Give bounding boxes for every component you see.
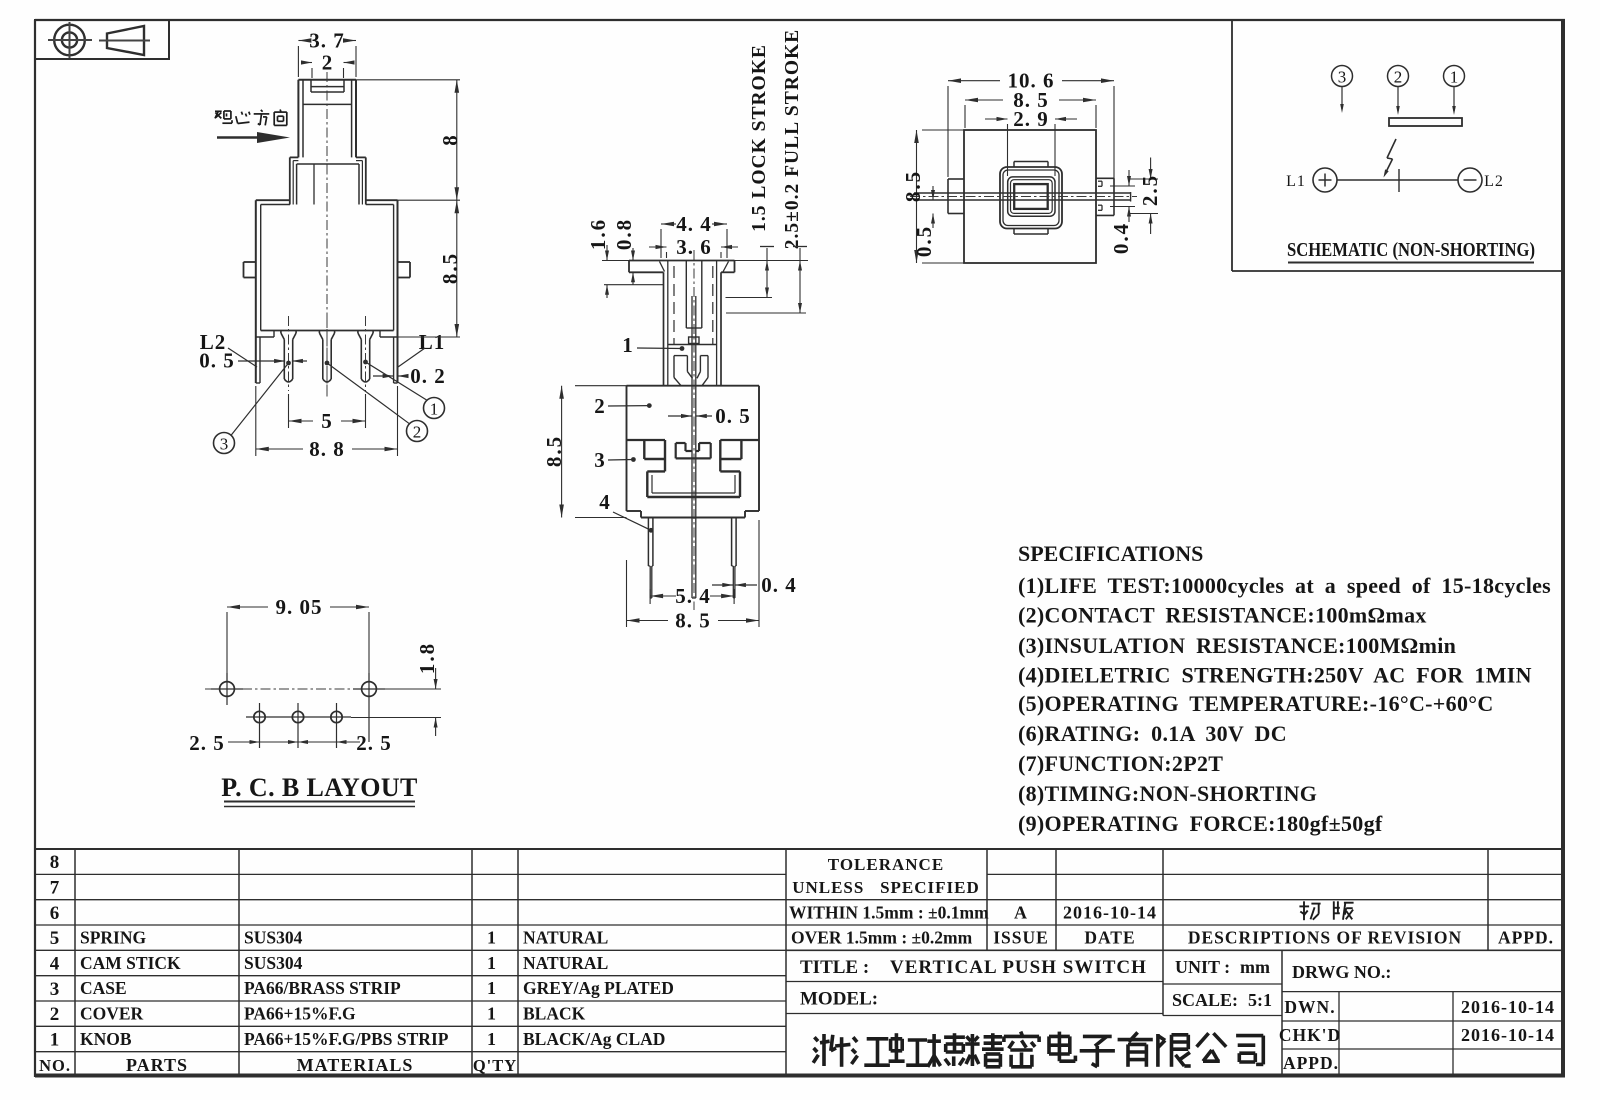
svg-text:1: 1 xyxy=(430,400,439,419)
svg-text:VERTICAL PUSH SWITCH: VERTICAL PUSH SWITCH xyxy=(890,957,1147,978)
svg-text:5: 5 xyxy=(321,409,333,433)
svg-text:6: 6 xyxy=(50,903,61,924)
svg-text:5. 4: 5. 4 xyxy=(675,584,711,608)
svg-text:APPD.: APPD. xyxy=(1498,928,1554,948)
svg-text:2016-10-14: 2016-10-14 xyxy=(1461,1025,1555,1045)
svg-text:SUS304: SUS304 xyxy=(244,953,303,973)
svg-text:5: 5 xyxy=(50,928,61,949)
svg-text:0.4: 0.4 xyxy=(1109,222,1133,254)
svg-text:(1)LIFE TEST:10000cycles at a: (1)LIFE TEST:10000cycles at a speed of 1… xyxy=(1018,573,1551,598)
svg-text:COVER: COVER xyxy=(80,1004,144,1024)
svg-text:L1: L1 xyxy=(419,330,446,354)
svg-text:(4)DIELETRIC STRENGTH:250V AC: (4)DIELETRIC STRENGTH:250V AC FOR 1MIN xyxy=(1018,663,1532,688)
svg-text:0.8: 0.8 xyxy=(612,218,636,250)
svg-text:1: 1 xyxy=(487,928,497,948)
svg-text:(3)INSULATION RESISTANCE:100MΩ: (3)INSULATION RESISTANCE:100MΩmin xyxy=(1018,633,1456,658)
svg-text:UNIT :: UNIT : xyxy=(1175,957,1230,977)
svg-text:7: 7 xyxy=(50,878,61,899)
svg-text:NATURAL: NATURAL xyxy=(523,928,608,948)
svg-text:DRWG NO.:: DRWG NO.: xyxy=(1292,962,1391,982)
svg-text:2: 2 xyxy=(50,1004,61,1025)
svg-text:mm: mm xyxy=(1240,957,1270,977)
svg-text:CHK'D: CHK'D xyxy=(1279,1025,1341,1045)
svg-text:DESCRIPTIONS OF REVISION: DESCRIPTIONS OF REVISION xyxy=(1188,928,1462,948)
svg-text:8.5: 8.5 xyxy=(901,170,925,202)
svg-text:Q'TY: Q'TY xyxy=(473,1056,517,1075)
svg-text:BLACK: BLACK xyxy=(523,1004,586,1024)
svg-text:MATERIALS: MATERIALS xyxy=(297,1055,414,1075)
svg-text:DWN.: DWN. xyxy=(1284,997,1335,1017)
svg-text:(2)CONTACT RESISTANCE:100mΩmax: (2)CONTACT RESISTANCE:100mΩmax xyxy=(1018,603,1427,628)
svg-text:3. 7: 3. 7 xyxy=(309,29,345,53)
svg-text:2016-10-14: 2016-10-14 xyxy=(1063,903,1157,923)
svg-text:4: 4 xyxy=(599,490,611,514)
svg-text:(7)FUNCTION:2P2T: (7)FUNCTION:2P2T xyxy=(1018,751,1223,776)
svg-text:L1: L1 xyxy=(1286,173,1306,190)
svg-text:1.8: 1.8 xyxy=(415,642,439,674)
svg-text:5:1: 5:1 xyxy=(1248,990,1272,1010)
svg-text:1.6: 1.6 xyxy=(586,218,610,250)
svg-text:0. 2: 0. 2 xyxy=(410,364,446,388)
svg-text:1: 1 xyxy=(622,333,634,357)
svg-text:PA66+15%F.G/PBS STRIP: PA66+15%F.G/PBS STRIP xyxy=(244,1029,449,1049)
svg-text:4. 4: 4. 4 xyxy=(676,212,712,236)
svg-text:A: A xyxy=(1014,903,1028,923)
svg-text:8.5: 8.5 xyxy=(542,435,566,467)
svg-text:NO.: NO. xyxy=(39,1056,71,1075)
svg-text:NATURAL: NATURAL xyxy=(523,953,608,973)
svg-text:1.5 LOCK STROKE: 1.5 LOCK STROKE xyxy=(749,44,770,232)
svg-text:1: 1 xyxy=(487,978,497,998)
svg-text:2: 2 xyxy=(413,423,422,442)
svg-text:2. 5: 2. 5 xyxy=(356,731,392,755)
svg-text:PARTS: PARTS xyxy=(126,1055,188,1075)
svg-text:SPECIFICATIONS: SPECIFICATIONS xyxy=(1018,541,1203,566)
svg-text:SPRING: SPRING xyxy=(80,928,147,948)
svg-text:1: 1 xyxy=(1450,68,1459,87)
svg-text:8: 8 xyxy=(50,852,61,873)
svg-text:MODEL:: MODEL: xyxy=(800,989,878,1010)
svg-text:8. 8: 8. 8 xyxy=(309,437,345,461)
svg-text:2. 5: 2. 5 xyxy=(189,731,225,755)
svg-text:(9)OPERATING FORCE:180gf±50gf: (9)OPERATING FORCE:180gf±50gf xyxy=(1018,811,1383,836)
svg-text:3: 3 xyxy=(1338,68,1347,87)
svg-text:CAM STICK: CAM STICK xyxy=(80,953,181,973)
svg-text:8: 8 xyxy=(438,134,462,146)
svg-text:TOLERANCE: TOLERANCE xyxy=(828,855,944,874)
svg-text:4: 4 xyxy=(50,954,61,975)
svg-text:GREY/Ag PLATED: GREY/Ag PLATED xyxy=(523,978,674,998)
svg-text:KNOB: KNOB xyxy=(80,1029,132,1049)
svg-text:SCALE:: SCALE: xyxy=(1172,990,1238,1010)
svg-text:0. 5: 0. 5 xyxy=(199,349,235,373)
svg-text:(8)TIMING:NON-SHORTING: (8)TIMING:NON-SHORTING xyxy=(1018,781,1317,806)
svg-text:ISSUE: ISSUE xyxy=(993,928,1049,948)
svg-text:3: 3 xyxy=(50,979,61,1000)
svg-text:2016-10-14: 2016-10-14 xyxy=(1461,997,1555,1017)
svg-text:PA66/BRASS STRIP: PA66/BRASS STRIP xyxy=(244,978,401,998)
svg-text:1: 1 xyxy=(50,1030,61,1051)
svg-text:APPD.: APPD. xyxy=(1283,1053,1339,1073)
svg-text:8.5: 8.5 xyxy=(438,252,462,284)
svg-text:2: 2 xyxy=(322,51,334,75)
svg-text:P. C. B LAYOUT: P. C. B LAYOUT xyxy=(221,773,418,802)
svg-text:UNLESS SPECIFIED: UNLESS SPECIFIED xyxy=(792,878,980,897)
svg-text:9. 05: 9. 05 xyxy=(276,595,323,619)
svg-text:CASE: CASE xyxy=(80,978,127,998)
svg-text:2.5±0.2 FULL STROKE: 2.5±0.2 FULL STROKE xyxy=(782,29,803,249)
svg-text:PA66+15%F.G: PA66+15%F.G xyxy=(244,1004,356,1024)
svg-text:0. 4: 0. 4 xyxy=(761,573,797,597)
svg-text:1: 1 xyxy=(487,1029,497,1049)
svg-text:DATE: DATE xyxy=(1084,928,1135,948)
svg-text:(5)OPERATING TEMPERATURE:-16°C: (5)OPERATING TEMPERATURE:-16°C-+60°C xyxy=(1018,691,1494,716)
svg-text:8. 5: 8. 5 xyxy=(675,609,711,633)
svg-text:3: 3 xyxy=(220,435,229,454)
svg-text:2. 9: 2. 9 xyxy=(1013,107,1049,131)
svg-text:L2: L2 xyxy=(1484,173,1504,190)
svg-text:(6)RATING: 0.1A 30V DC: (6)RATING: 0.1A 30V DC xyxy=(1018,721,1287,746)
svg-text:OVER 1.5mm : ±0.2mm: OVER 1.5mm : ±0.2mm xyxy=(791,928,973,948)
svg-text:1: 1 xyxy=(487,1004,497,1024)
svg-text:2: 2 xyxy=(1394,68,1403,87)
svg-text:BLACK/Ag CLAD: BLACK/Ag CLAD xyxy=(523,1029,665,1049)
svg-text:1: 1 xyxy=(487,953,497,973)
svg-text:SUS304: SUS304 xyxy=(244,928,303,948)
svg-text:0. 5: 0. 5 xyxy=(715,404,751,428)
svg-text:0.5: 0.5 xyxy=(912,225,936,257)
svg-text:2.5: 2.5 xyxy=(1138,174,1162,206)
svg-text:2: 2 xyxy=(594,394,606,418)
svg-text:WITHIN 1.5mm : ±0.1mm: WITHIN 1.5mm : ±0.1mm xyxy=(789,903,989,923)
svg-text:3: 3 xyxy=(594,448,606,472)
svg-text:SCHEMATIC (NON-SHORTING): SCHEMATIC (NON-SHORTING) xyxy=(1287,239,1535,261)
svg-text:TITLE :: TITLE : xyxy=(800,957,869,978)
